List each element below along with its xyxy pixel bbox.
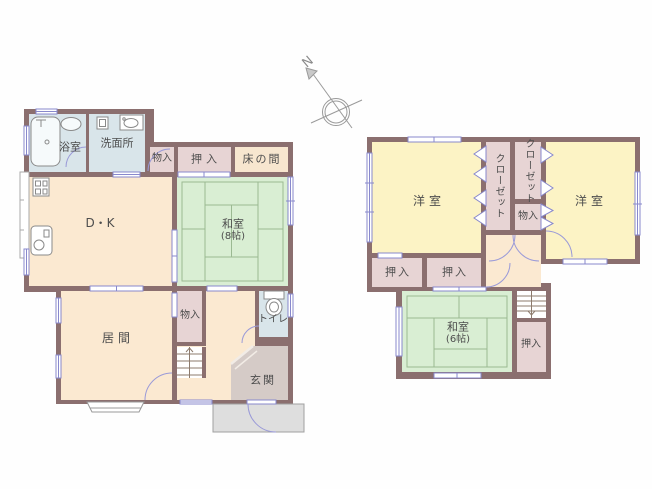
room-yoshitsu-right (546, 142, 635, 259)
room-closet-right (515, 142, 541, 199)
room-oshiire-2f-left (372, 258, 422, 287)
room-washitsu-6 (402, 291, 512, 372)
room-washroom (89, 114, 145, 172)
room-tokonoma (235, 147, 288, 172)
room-closet-left (486, 142, 510, 230)
room-bath (29, 114, 86, 172)
room-oshiire-2f-center (427, 258, 481, 287)
room-storage-2f (515, 204, 541, 230)
room-hallway-2f (486, 235, 541, 287)
room-storage-mid (177, 291, 206, 346)
rooms-layer (0, 0, 652, 489)
room-oshiire-2f-side (517, 322, 546, 372)
room-dk (29, 177, 172, 286)
room-washitsu-8 (177, 177, 288, 286)
staircase-2f (517, 291, 546, 318)
room-yoshitsu-left (372, 142, 481, 253)
room-living (61, 291, 172, 400)
floorplan-canvas: N 浴室 洗面所 物入 押入 床の間 D・K 和室 (8帖) 居間 物入 トイレ… (0, 0, 652, 489)
staircase-1f (177, 347, 206, 378)
room-toilet (255, 291, 288, 346)
room-storage-top (150, 147, 174, 172)
room-oshiire-top (178, 147, 231, 172)
